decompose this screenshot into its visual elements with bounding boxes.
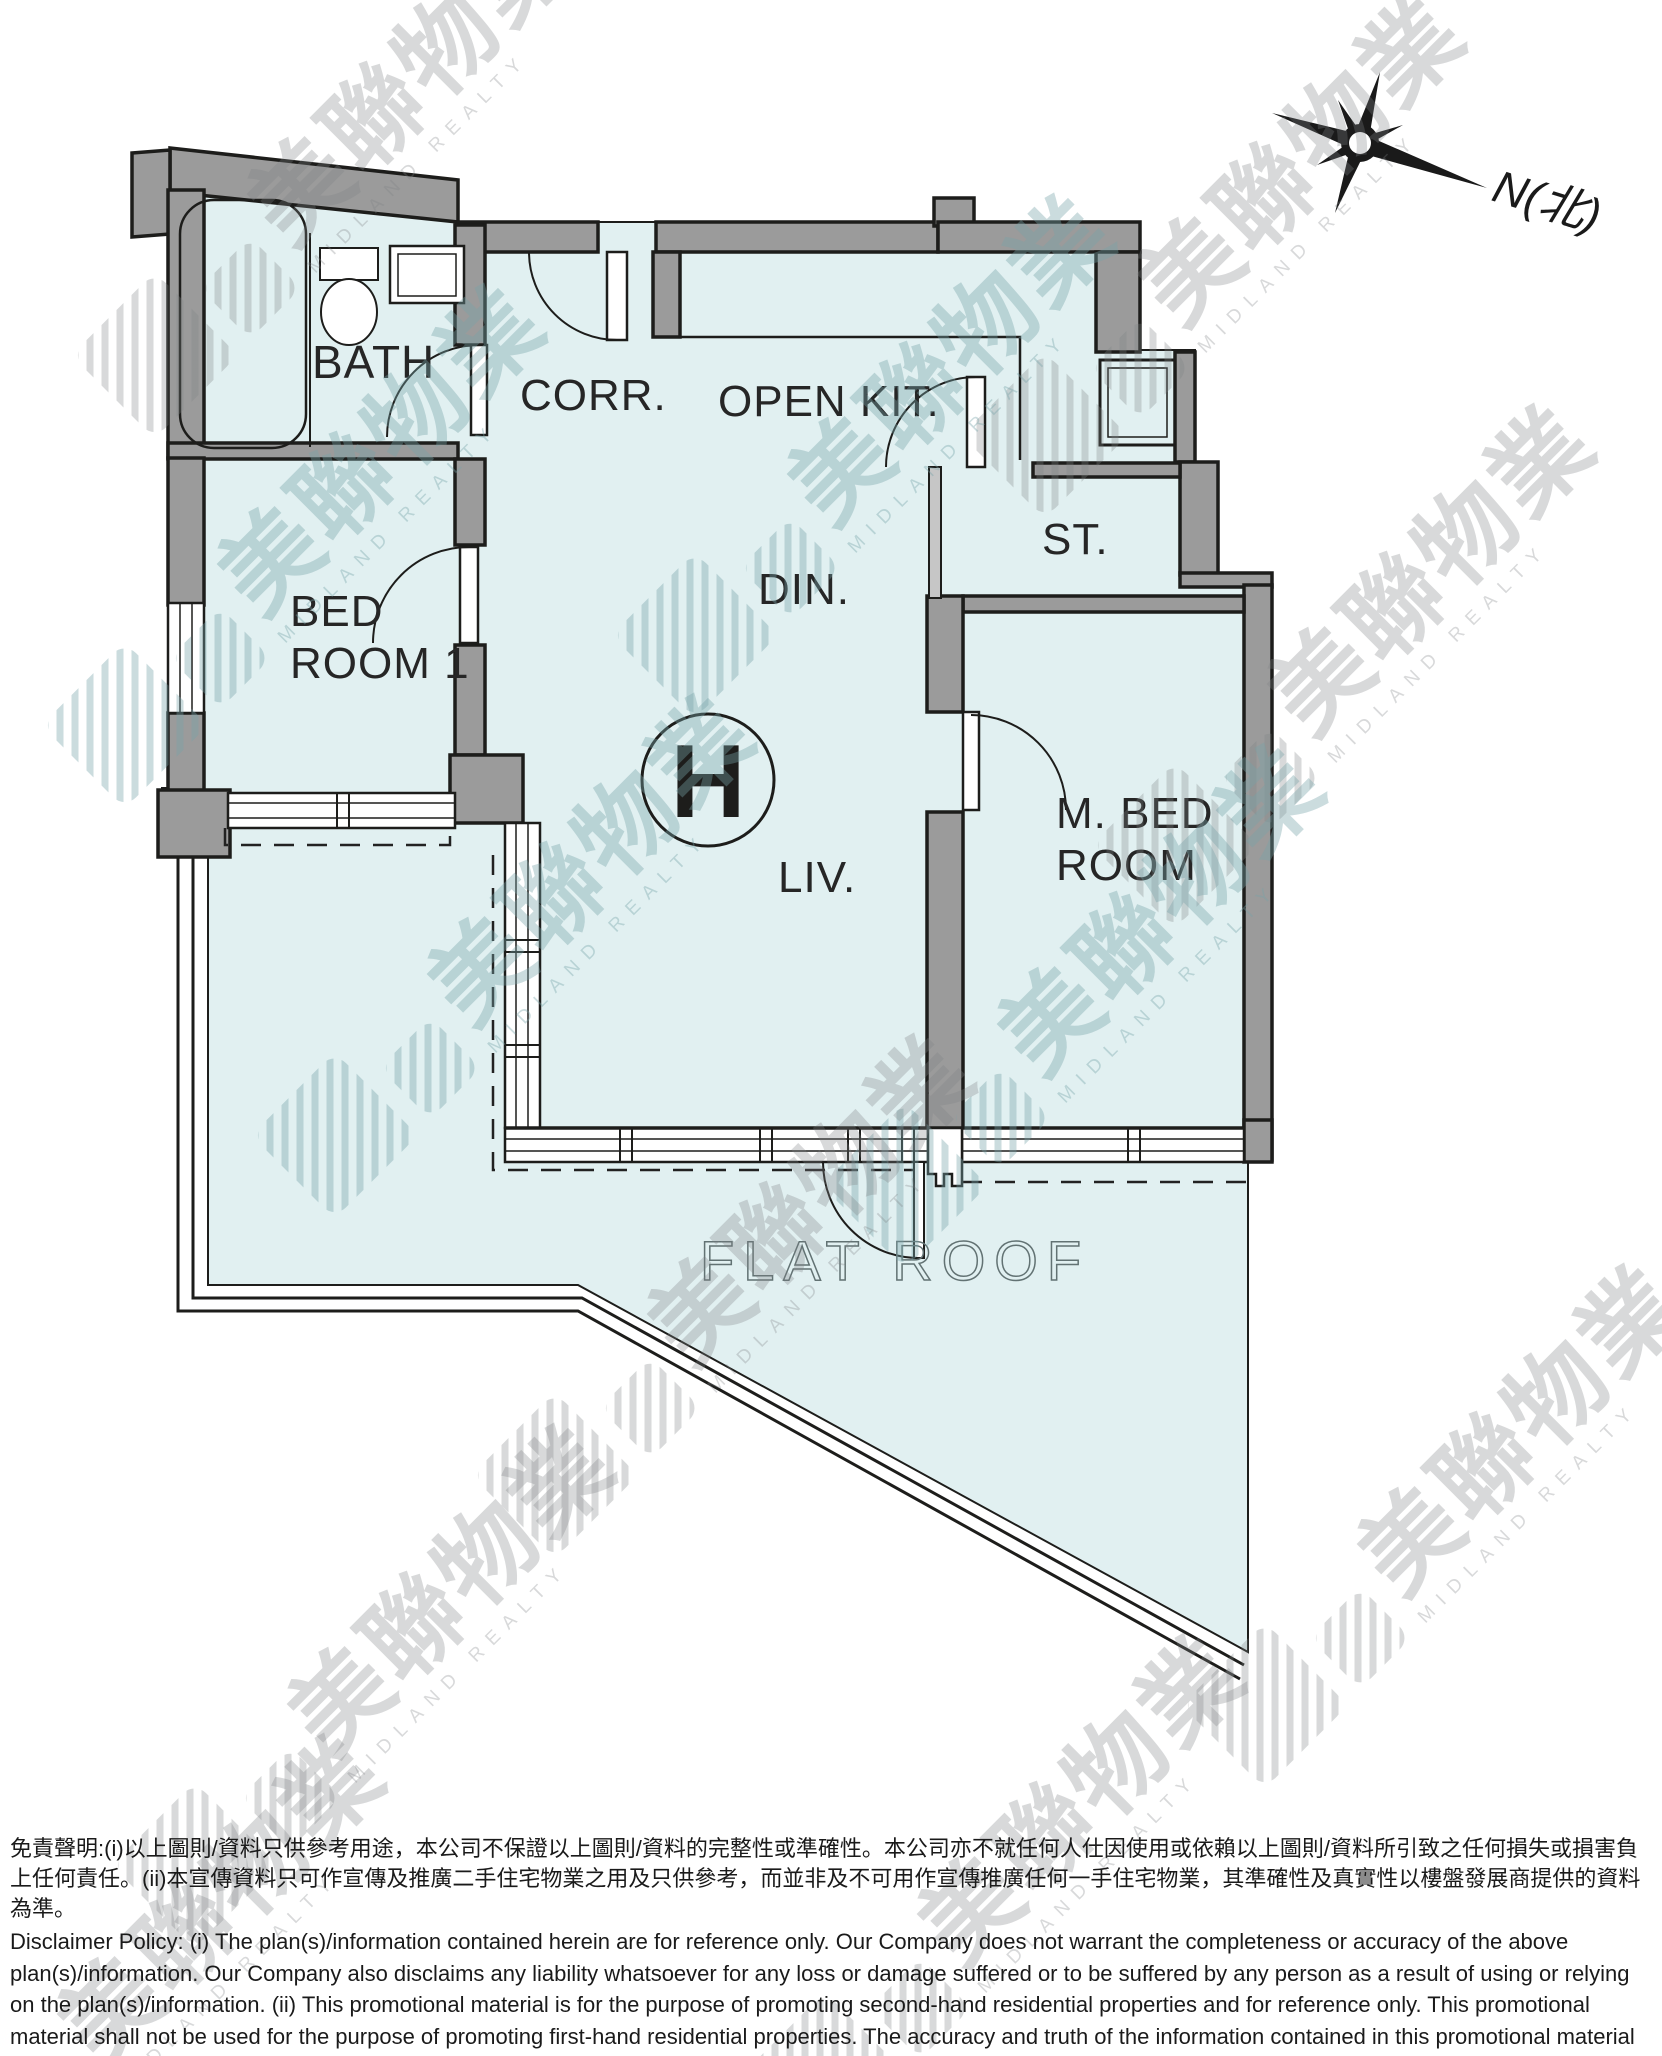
label-store: ST.: [1042, 515, 1109, 564]
store-door-leaf: [967, 377, 985, 467]
wall-bedroom1-east-upper: [455, 459, 485, 545]
wall-top-b: [656, 222, 938, 252]
label-bath: BATH: [312, 336, 435, 388]
wall-store-top: [1033, 463, 1180, 477]
label-bedroom1-line1: BED: [290, 587, 383, 636]
bedroom1-door-leaf: [460, 547, 478, 643]
label-open-kitchen: OPEN KIT.: [718, 377, 940, 426]
compass-label: N(北): [1487, 160, 1607, 242]
disclaimer-chinese: 免責聲明:(i)以上圖則/資料只供參考用途，本公司不保證以上圖則/資料的完整性或…: [10, 1834, 1654, 1924]
wall-bedroom1-west-upper: [168, 458, 204, 605]
compass-icon: [1272, 72, 1487, 213]
wall-mbr-east: [1244, 585, 1272, 1160]
wall-divider-lower: [927, 812, 963, 1133]
wall-store-right: [1180, 462, 1218, 575]
label-master-bedroom-line1: M. BED: [1056, 789, 1214, 838]
entrance-door-leaf: [607, 252, 627, 340]
label-corridor: CORR.: [520, 371, 667, 420]
wall-right-step: [1175, 352, 1195, 462]
wall-divider-upper: [927, 596, 963, 712]
wall-bedroom1-west-lower: [168, 713, 204, 795]
label-dining: DIN.: [758, 565, 850, 614]
label-flat-roof: FLAT ROOF: [700, 1229, 1090, 1292]
wall-mbr-north: [963, 596, 1244, 612]
disclaimer-block: 免責聲明:(i)以上圖則/資料只供參考用途，本公司不保證以上圖則/資料的完整性或…: [10, 1834, 1654, 2056]
label-living: LIV.: [778, 853, 856, 902]
unit-marker-letter: H: [670, 724, 745, 840]
wall-top-left-stub: [132, 150, 170, 237]
wall-bedroom1-sw-block: [158, 790, 230, 857]
label-master-bedroom-line2: ROOM: [1056, 841, 1197, 890]
wall-kitchen-stub: [653, 252, 680, 337]
master-bedroom-door-leaf: [963, 712, 979, 810]
wall-bath-south: [168, 443, 458, 459]
wall-bedroom1-se-block: [450, 755, 523, 823]
wall-store-left: [929, 467, 941, 598]
wall-top-c: [938, 222, 1140, 252]
bath-door-leaf: [471, 345, 487, 435]
floor-plan-drawing: H BATH CORR. OPEN KIT. ST. BED ROOM 1 DI…: [0, 0, 1662, 2056]
wall-kitchen-right: [1096, 252, 1140, 352]
label-bedroom1-line2: ROOM 1: [290, 639, 470, 688]
disclaimer-english: Disclaimer Policy: (i) The plan(s)/infor…: [10, 1926, 1654, 2056]
floor-plan-page: H BATH CORR. OPEN KIT. ST. BED ROOM 1 DI…: [0, 0, 1662, 2056]
wall-bath-west: [168, 190, 204, 458]
wall-south-band-end: [1244, 1120, 1272, 1162]
toilet-tank-icon: [320, 248, 378, 280]
